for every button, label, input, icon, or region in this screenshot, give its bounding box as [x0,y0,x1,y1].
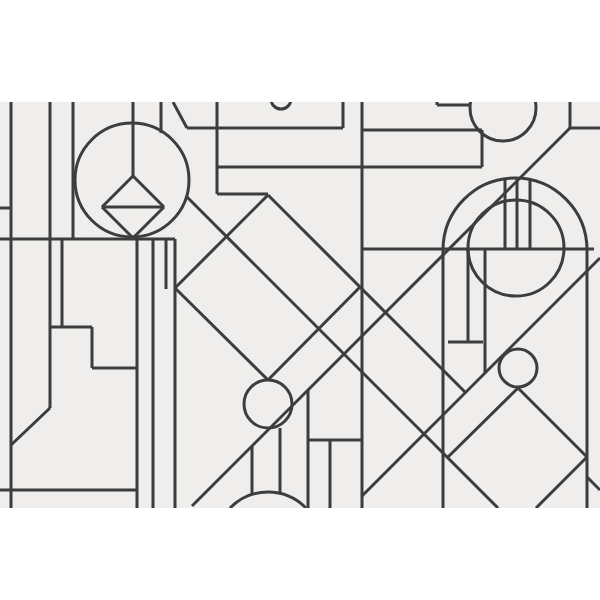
artwork-canvas [0,0,600,600]
artwork-page [0,0,600,600]
pattern-field [0,102,600,508]
